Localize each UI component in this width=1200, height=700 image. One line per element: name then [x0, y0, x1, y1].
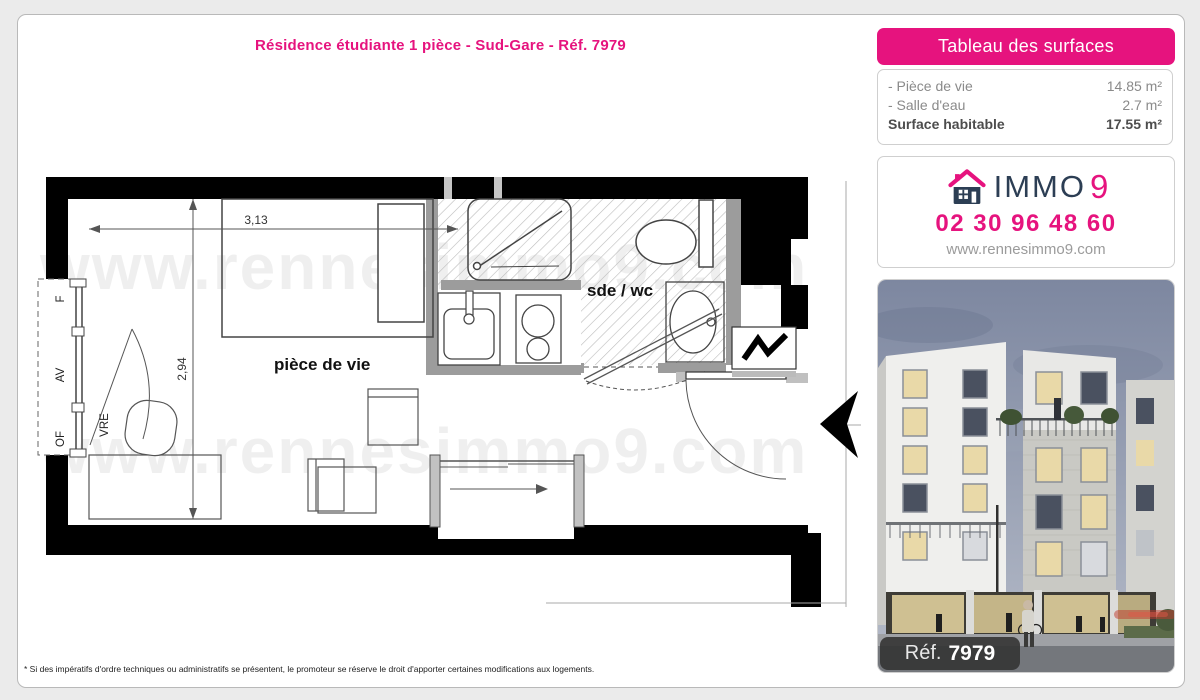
brand-digit: 9	[1090, 168, 1108, 206]
dim-height-label: 2,94	[175, 357, 189, 381]
window-label-f: F	[55, 295, 67, 302]
room-main-label: pièce de vie	[274, 355, 370, 374]
agency-logo: IMMO9	[944, 167, 1109, 207]
surface-total-value: 17.55 m²	[1106, 115, 1162, 134]
photo-ref-badge: Réf. 7979	[880, 637, 1020, 670]
room-bath-label: sde / wc	[587, 281, 653, 300]
building-photo: Réf. 7979	[877, 279, 1175, 673]
agency-phone: 02 30 96 48 60	[935, 210, 1116, 238]
table-row: - Pièce de vie 14.85 m²	[888, 77, 1162, 96]
surfaces-header: Tableau des surfaces	[877, 28, 1175, 65]
window-label-vre: VRE	[99, 413, 111, 437]
dim-width-label: 3,13	[244, 213, 268, 227]
kitchenette	[438, 290, 581, 365]
agency-website: www.rennesimmo9.com	[946, 241, 1105, 258]
surface-label: - Pièce de vie	[888, 77, 973, 96]
footnote: * Si des impératifs d'ordre techniques o…	[24, 664, 594, 674]
flyer-card: Résidence étudiante 1 pièce - Sud-Gare -…	[17, 14, 1185, 688]
electrical-panel	[732, 327, 796, 377]
house-icon	[944, 167, 990, 207]
building-render	[878, 280, 1175, 673]
page-title: Résidence étudiante 1 pièce - Sud-Gare -…	[18, 37, 863, 54]
agency-card: IMMO9 02 30 96 48 60 www.rennesimmo9.com	[877, 156, 1175, 268]
table-row: - Salle d'eau 2.7 m²	[888, 96, 1162, 115]
surfaces-table: - Pièce de vie 14.85 m² - Salle d'eau 2.…	[877, 69, 1173, 145]
surface-total-label: Surface habitable	[888, 115, 1005, 134]
window-label-av: AV	[55, 367, 67, 382]
ref-value: 7979	[948, 642, 995, 666]
surface-value: 14.85 m²	[1107, 77, 1162, 96]
surface-label: - Salle d'eau	[888, 96, 965, 115]
right-column: Tableau des surfaces - Pièce de vie 14.8…	[877, 15, 1175, 687]
floor-plan: www.rennesimmo9.com www.rennesimmo9.com	[34, 167, 864, 615]
window-label-of: OF	[55, 431, 67, 447]
brand-text: IMMO	[994, 169, 1086, 205]
surface-value: 2.7 m²	[1122, 96, 1162, 115]
table-row-total: Surface habitable 17.55 m²	[888, 115, 1162, 134]
ref-label: Réf.	[905, 642, 942, 665]
